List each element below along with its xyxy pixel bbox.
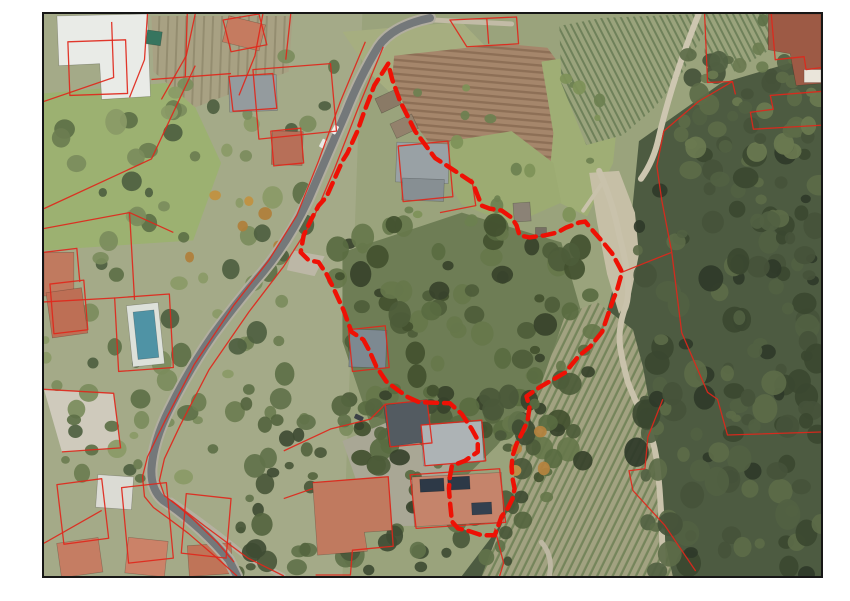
tree [741,88,754,99]
tree [208,444,219,454]
tree [222,370,234,379]
tree [775,499,800,530]
tree [297,414,316,429]
tree [74,464,90,483]
tree [787,369,810,393]
tree [275,295,288,308]
tree [273,336,284,346]
tree [174,470,193,485]
tree [351,224,374,250]
tree [792,479,811,494]
tree [242,543,262,562]
tree [707,70,718,79]
tree [240,150,252,162]
tree [689,83,709,105]
tree [109,267,124,281]
tree [785,232,795,244]
tree [514,512,533,529]
tree [260,448,277,469]
tree [68,425,83,438]
tree [562,302,579,320]
tree [654,334,668,345]
tree [236,198,244,208]
tree [633,245,643,256]
tree [494,348,511,369]
tree [679,161,701,179]
solar-panel-a [420,478,445,492]
tree [67,414,81,425]
map-frame [42,12,823,578]
tree [768,279,784,295]
tree [674,127,689,142]
tree [708,442,729,462]
tree [270,388,292,409]
tree [326,236,349,261]
tree [271,414,284,426]
tree [92,252,108,265]
tree [766,462,787,480]
tree [105,109,127,135]
tree [747,142,767,162]
tree [534,313,557,336]
house-bl-b [125,537,168,576]
tree [484,213,507,236]
tree [460,111,469,121]
tree [530,346,540,354]
tree [524,237,539,255]
tree [429,282,449,300]
tree [534,426,547,438]
tree [245,495,254,503]
tree [134,411,149,429]
tree [158,201,170,211]
tree [680,48,697,61]
tree [238,221,248,232]
tree [464,306,484,324]
tree [538,462,550,476]
tree [792,293,816,314]
tree [708,121,727,137]
tree [299,543,310,557]
tree [198,273,208,284]
tree [527,367,544,384]
tree [366,245,388,268]
tree [52,128,71,147]
tree [540,492,553,502]
tree [582,288,599,302]
tree [237,527,245,533]
tree [332,395,351,416]
page-background [0,0,850,601]
tree [758,230,779,253]
tree [191,393,207,411]
tree [803,270,816,280]
tree [484,114,496,123]
tree [721,365,734,381]
tree [478,549,494,565]
tree [761,370,786,395]
tree [131,389,151,408]
tree [733,58,747,73]
tree [718,542,732,559]
tree [494,195,500,202]
tree [561,243,580,266]
tree [752,42,764,55]
tree [747,344,762,358]
tree [755,195,766,205]
tree [748,419,760,433]
tree [99,188,107,197]
tree [389,449,409,465]
tree [492,266,513,283]
tree [389,301,411,328]
tree [747,256,770,278]
tree [512,350,533,369]
tree [694,385,715,410]
villa-gray-roof [228,75,277,112]
tree [733,310,745,325]
tree [471,321,494,345]
tree [741,389,756,407]
tree [517,322,536,339]
tree [308,472,318,480]
tree [209,190,221,200]
tree [61,456,70,464]
tree [170,276,188,290]
tree [190,151,201,161]
tree [374,427,387,441]
tree [733,537,751,557]
tree [258,207,272,220]
tree [727,111,738,122]
tree [524,164,535,178]
tree [222,259,240,279]
tree [380,281,403,298]
tree [301,442,313,456]
tree [465,284,479,297]
tree [594,115,600,121]
tree [251,513,272,536]
tree [318,101,331,111]
tree [698,265,723,291]
tree [719,140,733,153]
tree [466,214,478,226]
tree [754,133,766,144]
tree [421,301,441,320]
tree [285,462,294,470]
tree [129,432,138,439]
tree [267,468,280,478]
tree [299,116,316,132]
tree [328,60,340,74]
tree [752,394,777,423]
tree [122,171,142,191]
tree [731,414,741,422]
tree [729,201,746,218]
tree [135,474,146,483]
tree [594,94,605,108]
tree [207,99,220,114]
tree [386,216,403,233]
tree [499,526,513,539]
tree [133,459,142,469]
tree [534,294,544,302]
tree [514,491,528,504]
tree [733,167,759,188]
tree [573,80,586,94]
tree [480,247,502,266]
tree [108,338,122,355]
tree [437,386,454,401]
tree [677,447,690,462]
tree [406,341,425,364]
tree [258,417,272,433]
tree [758,14,769,27]
tree [495,430,507,441]
tree [731,254,749,274]
tree [504,556,512,566]
tree [634,220,645,233]
tree [799,413,813,429]
tree [178,232,189,243]
tree [446,316,462,333]
greenhouse [146,30,163,46]
tree [710,172,729,187]
tree [462,84,470,91]
tree [649,458,668,481]
tree [451,135,464,149]
tree [275,362,294,386]
tree [442,261,453,271]
tree [535,354,545,363]
tree [99,231,118,251]
tree [221,144,232,157]
annex-white-tr [804,70,821,83]
tree [677,230,688,238]
tree [566,424,581,438]
tree [794,246,815,264]
shed-north [513,202,531,222]
aerial-photo-map [44,14,821,576]
tree [413,88,422,97]
tree [314,447,327,458]
tree [775,176,788,188]
tree [556,361,566,372]
tree [759,211,780,231]
tree [367,455,391,475]
tree [782,302,794,314]
tree [427,385,440,397]
tree [690,427,702,440]
tree [741,480,758,498]
tree [243,384,255,395]
tree [185,252,194,263]
tree [404,207,413,214]
tree [755,538,765,548]
tree [246,563,256,570]
tree [415,562,428,573]
tree [680,482,704,509]
tree [350,261,371,287]
solar-panel-c [471,502,491,515]
tree [545,297,561,313]
tree [407,364,426,388]
tree [287,559,307,575]
tree [432,243,446,260]
tree [354,300,370,313]
tree [229,338,247,354]
tree [441,548,451,558]
tree [335,272,345,280]
tree [145,188,153,198]
tree [662,382,682,405]
tree [801,195,811,204]
tree [685,139,697,149]
tree [756,61,768,72]
tree [240,397,252,411]
tree [776,415,799,438]
tree [413,211,423,219]
tree [67,155,86,172]
tree [363,565,374,576]
tree [254,224,271,242]
tree [511,163,522,176]
tree [87,358,98,369]
tree [247,321,267,344]
tree [262,186,282,209]
tree [410,542,426,559]
tree [794,205,808,220]
tree [482,399,504,421]
tree [702,211,724,234]
tree [787,89,802,107]
tree [586,158,594,164]
tree [709,51,728,73]
tree [573,451,592,470]
tree [581,366,595,377]
tree [560,74,572,84]
tree [244,196,253,206]
tree [431,356,445,372]
tree [279,430,295,446]
tree [693,110,704,123]
tree [705,467,729,496]
tree [645,351,670,375]
tree [562,207,576,222]
